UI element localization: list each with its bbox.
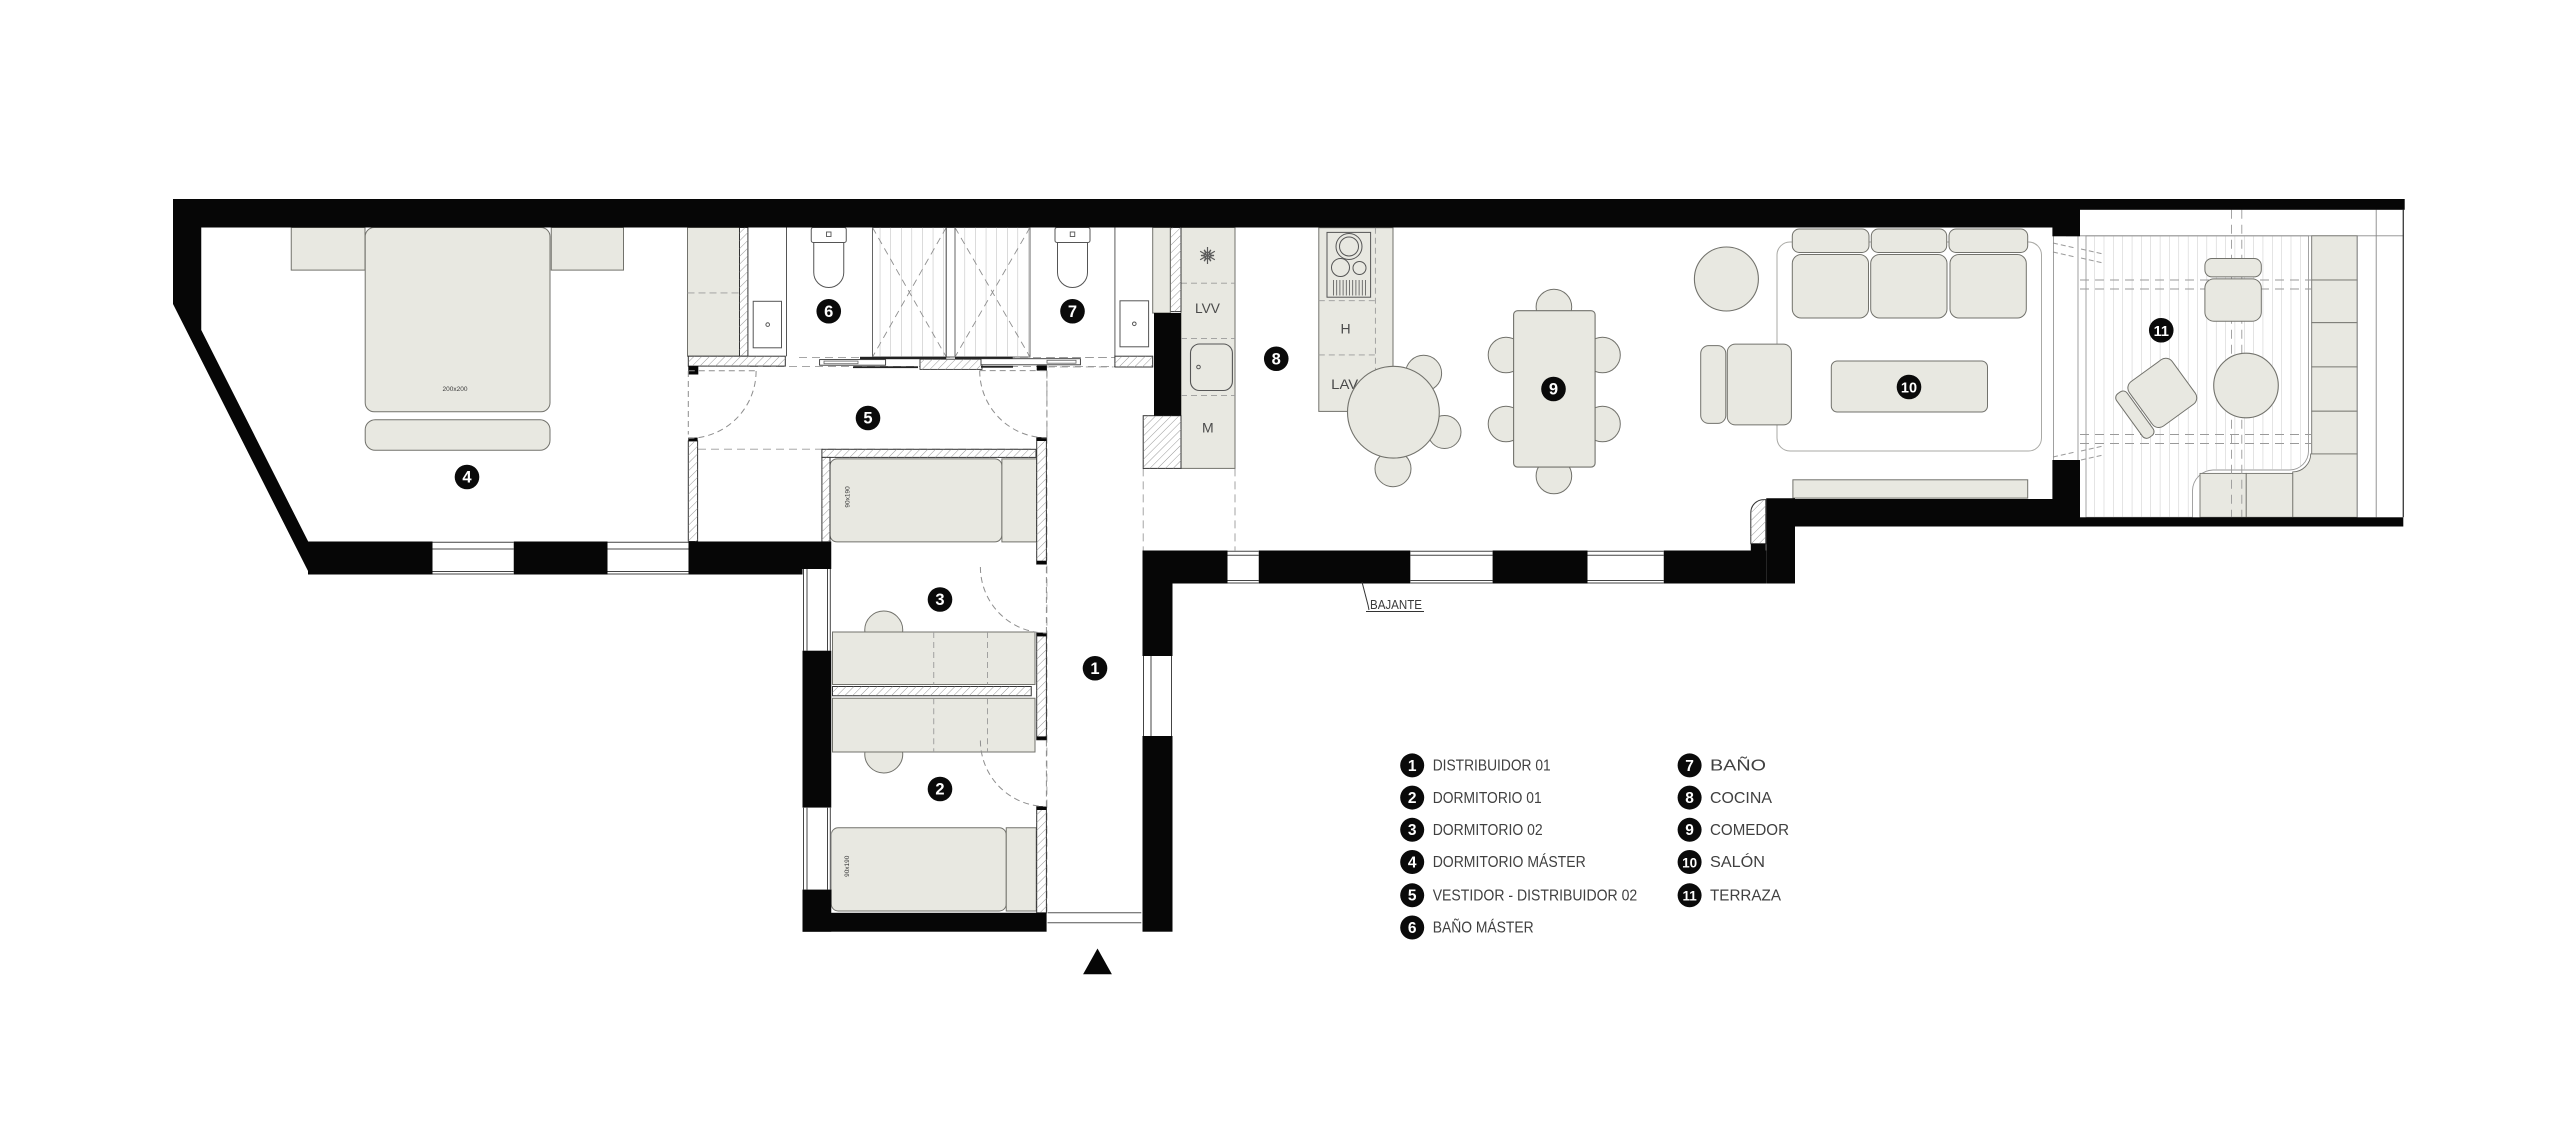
svg-text:COMEDOR: COMEDOR	[1710, 822, 1789, 839]
svg-text:BAJANTE: BAJANTE	[1370, 597, 1422, 612]
svg-text:VESTIDOR - DISTRIBUIDOR 02: VESTIDOR - DISTRIBUIDOR 02	[1433, 888, 1638, 905]
svg-text:BAÑO: BAÑO	[1710, 755, 1766, 775]
svg-text:11: 11	[1682, 889, 1697, 904]
svg-text:6: 6	[1408, 920, 1417, 937]
svg-text:7: 7	[1068, 303, 1077, 321]
svg-text:8: 8	[1272, 350, 1281, 368]
svg-text:11: 11	[2154, 324, 2169, 340]
svg-text:7: 7	[1685, 758, 1694, 775]
svg-text:SALÓN: SALÓN	[1710, 852, 1765, 871]
svg-text:3: 3	[1408, 822, 1417, 839]
svg-text:6: 6	[824, 303, 833, 321]
svg-text:1: 1	[1090, 660, 1099, 678]
svg-text:2: 2	[935, 781, 944, 799]
svg-text:H: H	[1340, 321, 1350, 337]
svg-text:DORMITORIO 02: DORMITORIO 02	[1433, 822, 1543, 839]
svg-text:5: 5	[863, 410, 872, 428]
svg-text:200x200: 200x200	[443, 386, 468, 393]
svg-text:1: 1	[1408, 758, 1417, 775]
svg-text:M: M	[1202, 420, 1214, 436]
svg-text:9: 9	[1685, 822, 1694, 839]
svg-text:90x190: 90x190	[844, 855, 851, 877]
svg-text:LVV: LVV	[1195, 300, 1221, 316]
svg-text:90x190: 90x190	[844, 486, 851, 508]
svg-text:2: 2	[1408, 790, 1417, 807]
svg-text:4: 4	[1408, 854, 1417, 871]
svg-text:9: 9	[1549, 381, 1558, 399]
svg-text:10: 10	[1682, 855, 1697, 870]
svg-text:DORMITORIO MÁSTER: DORMITORIO MÁSTER	[1433, 852, 1586, 871]
svg-text:10: 10	[1901, 381, 1917, 397]
svg-text:4: 4	[462, 469, 472, 487]
svg-text:DORMITORIO 01: DORMITORIO 01	[1433, 790, 1542, 807]
svg-text:COCINA: COCINA	[1710, 790, 1772, 807]
svg-text:3: 3	[935, 591, 944, 609]
svg-text:TERRAZA: TERRAZA	[1710, 888, 1781, 905]
svg-text:DISTRIBUIDOR 01: DISTRIBUIDOR 01	[1433, 758, 1551, 775]
svg-text:5: 5	[1408, 888, 1417, 905]
svg-text:8: 8	[1685, 790, 1694, 807]
svg-text:BAÑO MÁSTER: BAÑO MÁSTER	[1433, 917, 1534, 937]
